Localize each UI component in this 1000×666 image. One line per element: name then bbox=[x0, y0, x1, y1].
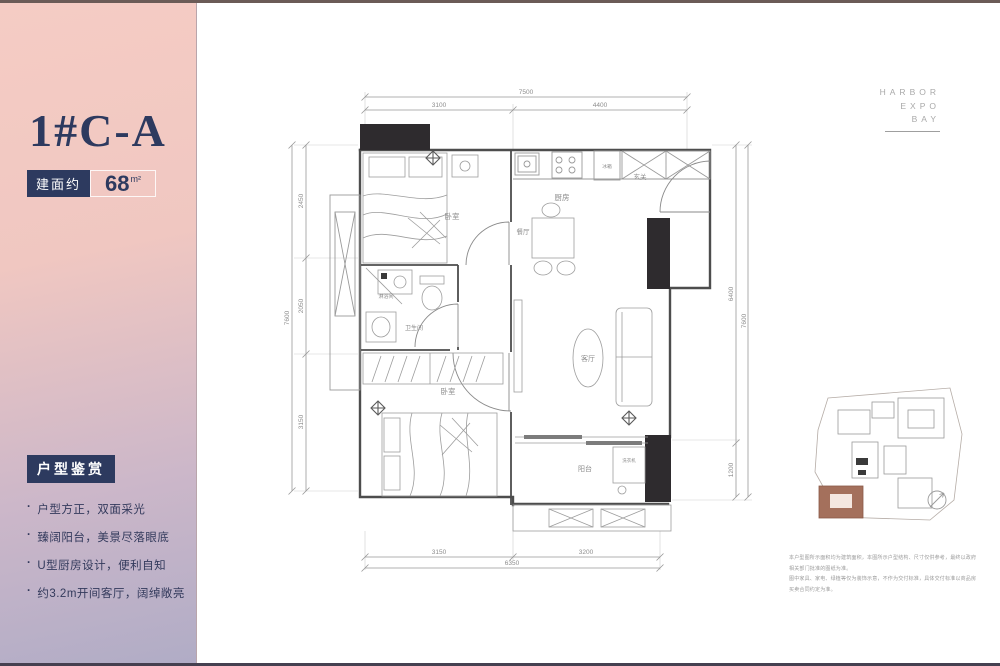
bedroom1-door bbox=[466, 222, 509, 265]
upper-slab-block bbox=[360, 124, 430, 150]
entry-door bbox=[660, 161, 710, 212]
tv-cabinet bbox=[514, 300, 522, 392]
stove bbox=[552, 152, 582, 178]
bedroom1-furniture bbox=[363, 153, 478, 263]
interior-walls bbox=[360, 150, 511, 505]
disclaimer-line: 图中家具、家电、绿植等仅为装饰示意，不作为交付标准，具体交付标准以商品房买卖合同… bbox=[789, 574, 977, 595]
dim-right-seg: 1200 bbox=[728, 462, 735, 477]
room-label-bedroom-1: 卧室 bbox=[445, 211, 460, 221]
dim-bottom-total: 6350 bbox=[505, 560, 520, 567]
site-plan bbox=[815, 388, 962, 520]
living-furniture bbox=[514, 300, 652, 406]
dim-left-total: 7600 bbox=[284, 310, 291, 325]
column-block bbox=[647, 218, 670, 289]
bedroom2-furniture bbox=[363, 353, 503, 496]
room-label-entry: 玄关 bbox=[634, 172, 648, 181]
room-label-bathroom: 卫生间 bbox=[405, 324, 423, 332]
column-block bbox=[645, 435, 671, 502]
structural-columns bbox=[360, 124, 671, 502]
dim-right-seg: 6400 bbox=[728, 286, 735, 301]
room-label-living: 客厅 bbox=[581, 354, 595, 363]
dim-left-seg: 3150 bbox=[298, 414, 305, 429]
dining-table bbox=[532, 218, 574, 258]
dim-left-seg: 2450 bbox=[298, 193, 305, 208]
site-highlight-inner bbox=[830, 494, 852, 508]
dim-left-seg: 2050 bbox=[298, 298, 305, 313]
room-label-kitchen: 厨房 bbox=[555, 192, 570, 202]
dim-top-seg: 4400 bbox=[593, 102, 608, 109]
dim-bottom-seg: 3200 bbox=[579, 549, 594, 556]
room-label-dining: 餐厅 bbox=[517, 227, 531, 236]
disclaimer: 本户型图所示面积均为建筑面积，本图所示户型结构、尺寸仅供参考，最终以政府相关部门… bbox=[789, 553, 977, 595]
page: 1#C-A 建面约 68 m² 户型鉴赏 ·户型方正，双面采光 ·臻阔阳台，美景… bbox=[0, 0, 1000, 666]
bay-window bbox=[330, 195, 360, 390]
vent-icon bbox=[622, 411, 636, 425]
basin-cabinet bbox=[366, 312, 396, 342]
dim-right-total: 7600 bbox=[741, 313, 748, 328]
washing-machine bbox=[613, 447, 645, 483]
disclaimer-line: 本户型图所示面积均为建筑面积，本图所示户型结构、尺寸仅供参考，最终以政府相关部门… bbox=[789, 553, 977, 574]
dimension-labels: 7500 3100 4400 7600 2450 2050 3150 6400 … bbox=[284, 89, 748, 567]
dining-furniture bbox=[532, 203, 575, 275]
room-label-fridge: 冰箱 bbox=[602, 163, 612, 170]
wardrobe bbox=[363, 353, 503, 384]
dim-top-total: 7500 bbox=[519, 89, 534, 96]
toilet bbox=[420, 276, 444, 284]
room-label-bedroom-2: 卧室 bbox=[441, 386, 456, 396]
top-border bbox=[0, 0, 1000, 3]
room-label-shower: 淋浴间 bbox=[378, 293, 393, 300]
dim-top-seg: 3100 bbox=[432, 102, 447, 109]
nightstand bbox=[452, 155, 478, 177]
bedroom2-door bbox=[453, 353, 511, 411]
dim-bottom-seg: 3150 bbox=[432, 549, 447, 556]
bed bbox=[382, 413, 497, 496]
room-label-balcony: 阳台 bbox=[578, 464, 592, 473]
room-label-washer: 洗衣机 bbox=[622, 457, 636, 464]
room-labels: 卧室 厨房 餐厅 冰箱 玄关 淋浴间 卫生间 卧室 客厅 阳台 洗衣机 bbox=[378, 163, 647, 473]
